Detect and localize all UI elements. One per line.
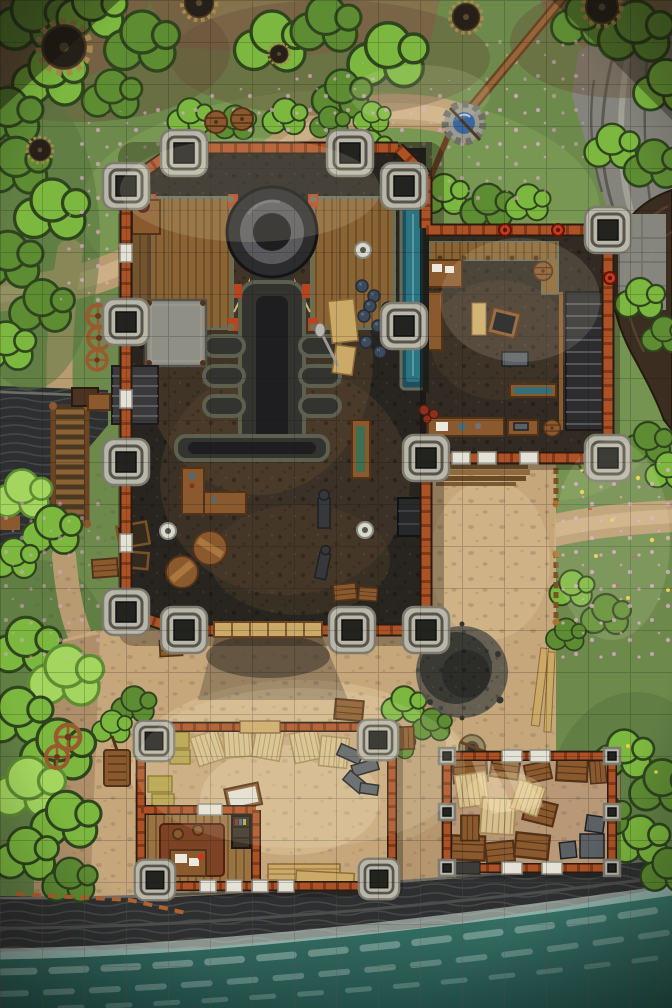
lighting [0, 0, 672, 1008]
battle-map: Top-down fantasy battle map: a coastal f… [0, 0, 672, 1008]
map-canvas: Top-down fantasy battle map: a coastal f… [0, 0, 672, 1008]
